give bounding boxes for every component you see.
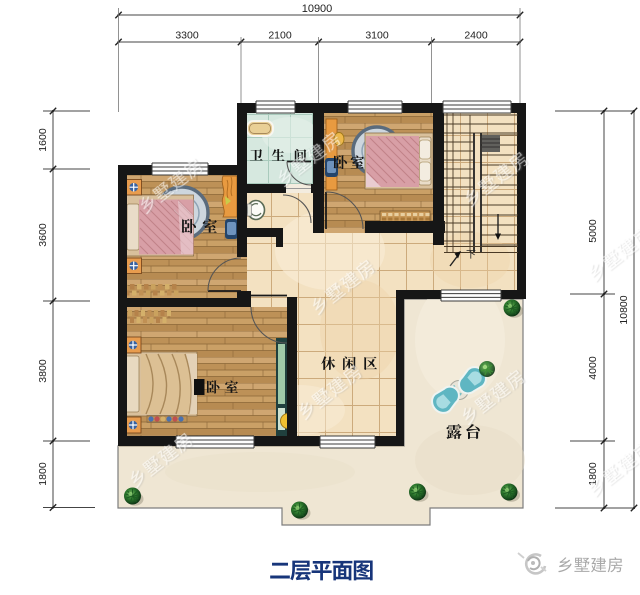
svg-text:4000: 4000 — [587, 356, 599, 380]
svg-text:5000: 5000 — [587, 219, 599, 243]
svg-text:1800: 1800 — [37, 462, 49, 486]
svg-text:10800: 10800 — [618, 295, 630, 324]
svg-text:3800: 3800 — [37, 359, 49, 383]
svg-text:3100: 3100 — [365, 30, 389, 42]
svg-text:10900: 10900 — [302, 3, 333, 15]
svg-text:3600: 3600 — [37, 223, 49, 247]
svg-text:1600: 1600 — [37, 128, 49, 152]
svg-text:2400: 2400 — [464, 30, 488, 42]
svg-text:2100: 2100 — [268, 30, 292, 42]
svg-text:3300: 3300 — [175, 30, 199, 42]
